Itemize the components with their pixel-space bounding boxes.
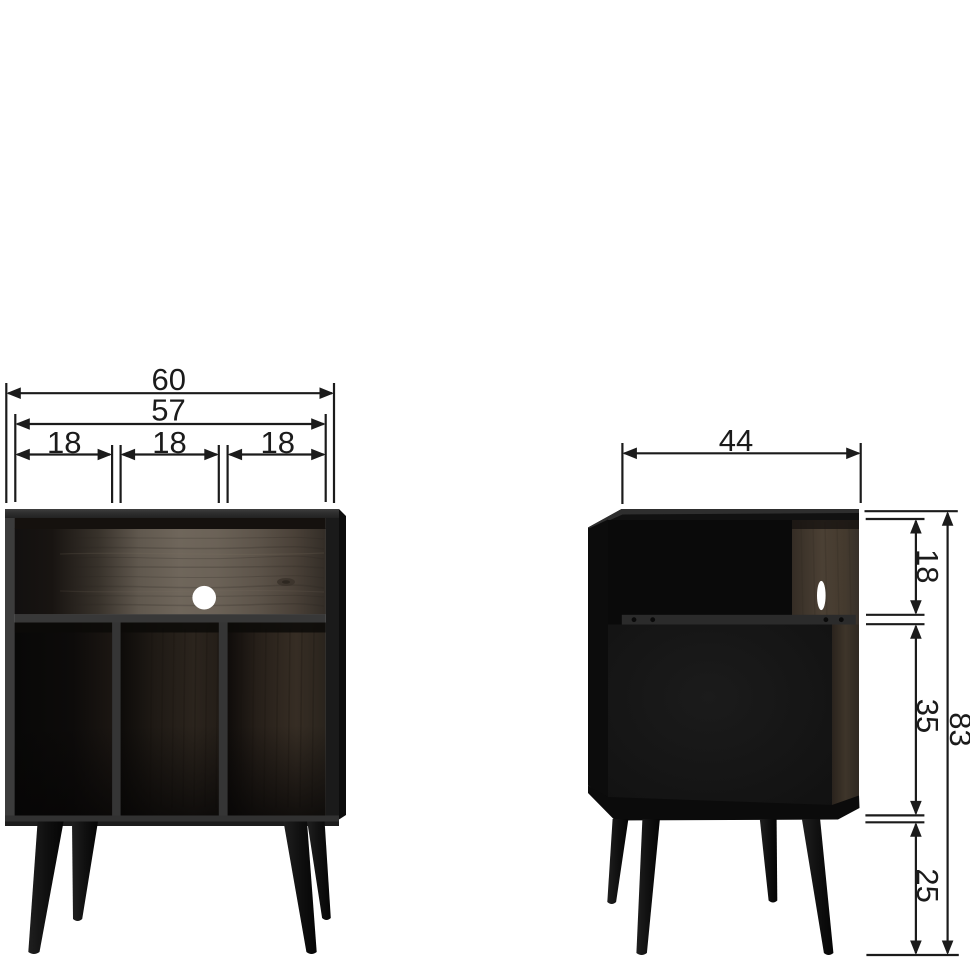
svg-text:25: 25 [910,868,945,902]
svg-text:18: 18 [261,425,295,460]
svg-text:83: 83 [943,712,970,746]
svg-text:18: 18 [152,425,186,460]
svg-text:44: 44 [719,423,753,458]
svg-text:18: 18 [910,549,945,583]
svg-text:35: 35 [910,699,945,733]
svg-text:18: 18 [47,425,81,460]
svg-text:57: 57 [151,393,185,428]
